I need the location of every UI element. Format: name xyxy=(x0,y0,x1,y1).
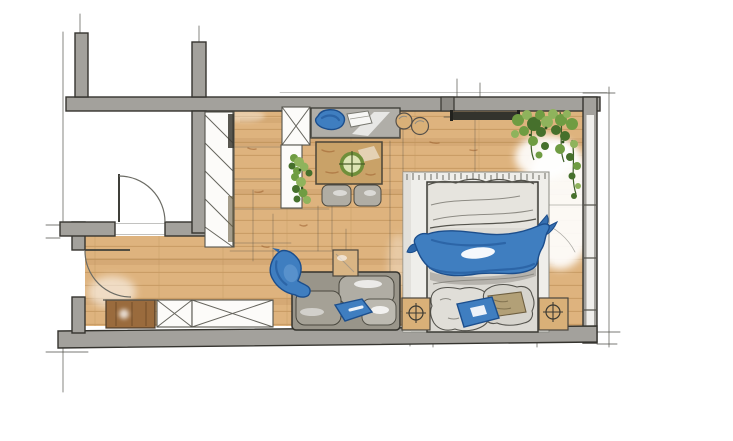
door-swing-arc xyxy=(119,176,165,222)
top-wall-joint xyxy=(441,97,454,111)
upper-column-left xyxy=(75,33,88,97)
interior-wall-vertical xyxy=(192,111,206,233)
upper-column-right xyxy=(192,42,206,97)
interior-wall-left xyxy=(60,222,115,236)
stool xyxy=(396,113,412,129)
cabinet-highlight xyxy=(119,309,129,319)
door-threshold xyxy=(115,224,165,235)
desk-chair-blue xyxy=(316,110,345,130)
wardrobe xyxy=(205,112,234,247)
side-table xyxy=(333,250,358,276)
nightstand-left xyxy=(402,298,430,330)
wardrobe-contents-dark xyxy=(228,114,234,148)
desk xyxy=(311,108,400,138)
nightstand-right xyxy=(539,298,568,330)
tall-cabinet xyxy=(282,107,310,145)
window-glass xyxy=(587,115,595,327)
entry-closet xyxy=(157,300,273,327)
left-wall-lower xyxy=(72,297,85,333)
wardrobe-contents-tan xyxy=(228,196,234,242)
floor-plan xyxy=(0,0,733,441)
sofa xyxy=(292,272,400,330)
door-side-room xyxy=(119,174,165,222)
shoe-cabinet xyxy=(103,300,158,328)
floor-plan-drawing xyxy=(0,0,733,441)
dining-table xyxy=(316,142,382,184)
stool xyxy=(412,118,429,135)
pillows xyxy=(431,285,534,331)
